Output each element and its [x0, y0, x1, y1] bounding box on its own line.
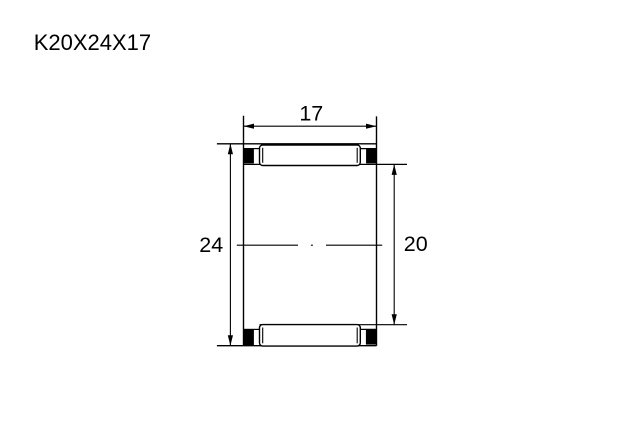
- svg-text:24: 24: [199, 233, 223, 257]
- svg-text:K20X24X17: K20X24X17: [34, 30, 151, 55]
- svg-text:20: 20: [404, 232, 428, 256]
- svg-text:17: 17: [299, 102, 323, 126]
